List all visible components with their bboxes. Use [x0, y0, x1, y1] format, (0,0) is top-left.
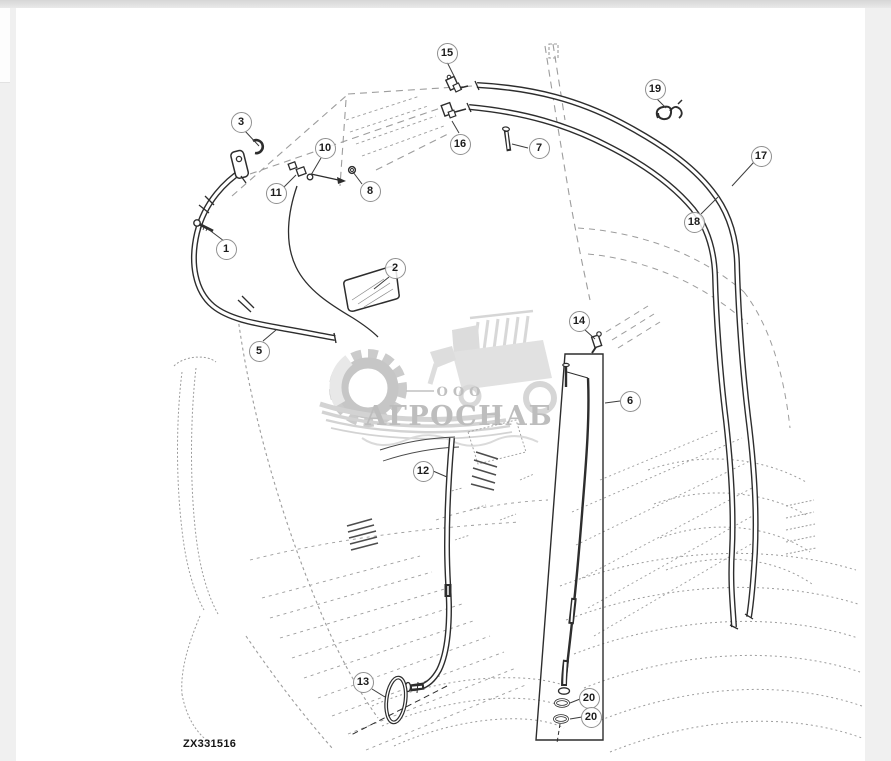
clip-3: [253, 140, 263, 153]
fitting-14: [592, 332, 602, 353]
o-ring-13: [349, 677, 447, 736]
pin-7: [502, 127, 509, 151]
watermark: ООО АГРОСНАБ: [320, 311, 554, 446]
fitting-16: [441, 103, 466, 118]
watermark-prefix: ООО: [437, 385, 486, 400]
pad-plate-2: [344, 267, 399, 311]
fitting-15: [446, 75, 468, 92]
parts-diagram-page: ООО АГРОСНАБ: [0, 0, 891, 761]
nut-8: [349, 167, 356, 174]
cable-assembly: [288, 162, 378, 337]
hose-5: [194, 170, 336, 343]
nut-10: [307, 174, 313, 180]
cab-structure-lines: [174, 44, 862, 752]
watermark-title: АГРОСНАБ: [365, 401, 554, 432]
exploded-view-drawing: ООО АГРОСНАБ: [0, 0, 891, 761]
figure-code-label: ZX331516: [183, 738, 236, 750]
